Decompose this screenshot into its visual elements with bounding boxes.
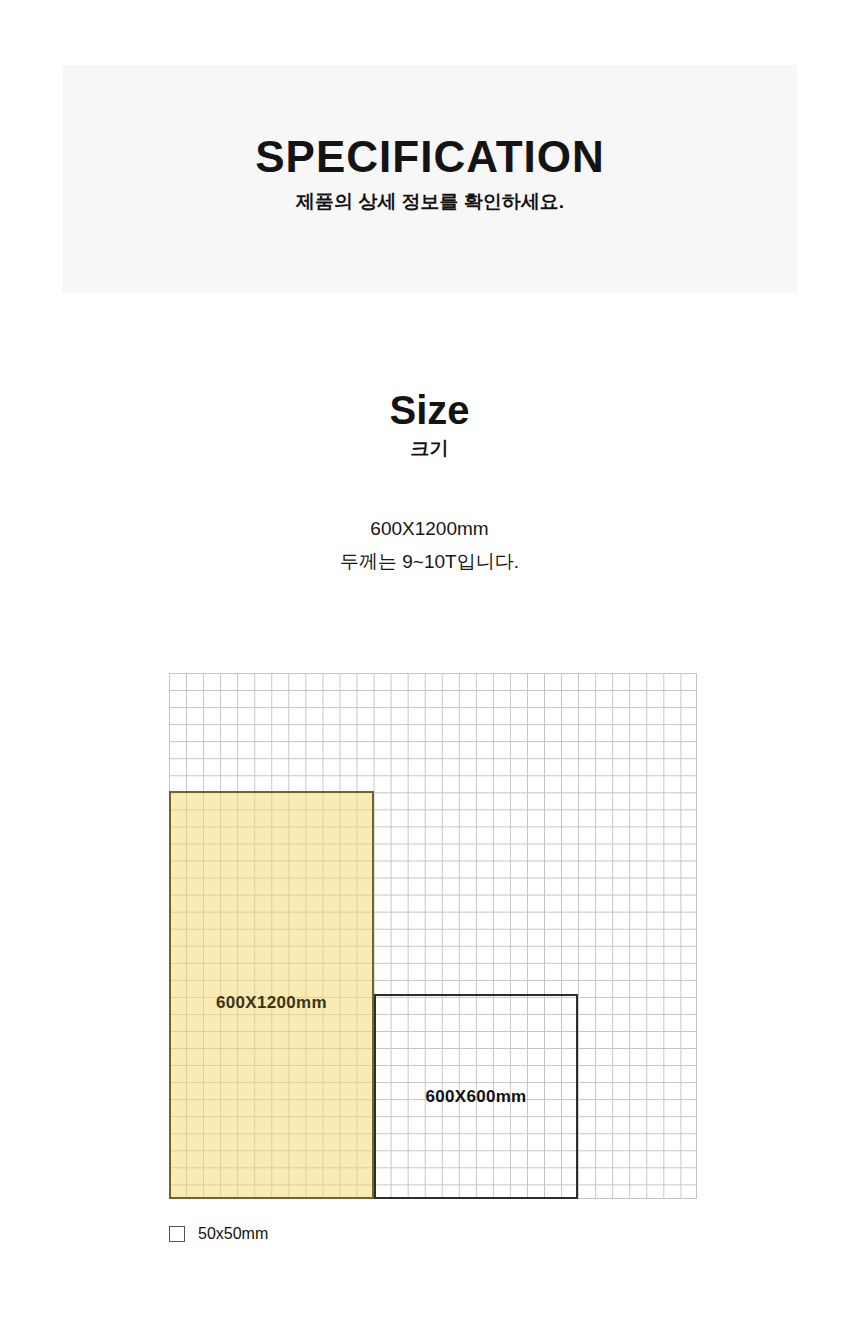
size-title: Size [0, 389, 859, 431]
size-spec-text: 600X1200mm 두께는 9~10T입니다. [0, 518, 859, 573]
rect-600x1200: 600X1200mm [169, 791, 374, 1199]
size-comparison-grid: 600X1200mm 600X600mm [169, 673, 697, 1199]
thickness-text: 두께는 9~10T입니다. [0, 551, 859, 573]
specification-subtitle: 제품의 상세 정보를 확인하세요. [63, 189, 797, 215]
specification-header: SPECIFICATION 제품의 상세 정보를 확인하세요. [63, 65, 797, 293]
legend-cell-swatch [169, 1226, 185, 1242]
specification-page: SPECIFICATION 제품의 상세 정보를 확인하세요. Size 크기 … [0, 0, 859, 1323]
size-section-heading: Size 크기 [0, 389, 859, 459]
grid-legend: 50x50mm [169, 1225, 268, 1243]
size-subtitle-korean: 크기 [0, 439, 859, 459]
legend-label: 50x50mm [198, 1225, 268, 1243]
rect-600x600-label: 600X600mm [426, 1087, 527, 1107]
dimension-text: 600X1200mm [0, 518, 859, 540]
rect-600x600: 600X600mm [374, 994, 578, 1199]
specification-title: SPECIFICATION [63, 65, 797, 179]
rect-600x1200-label: 600X1200mm [171, 993, 372, 1013]
